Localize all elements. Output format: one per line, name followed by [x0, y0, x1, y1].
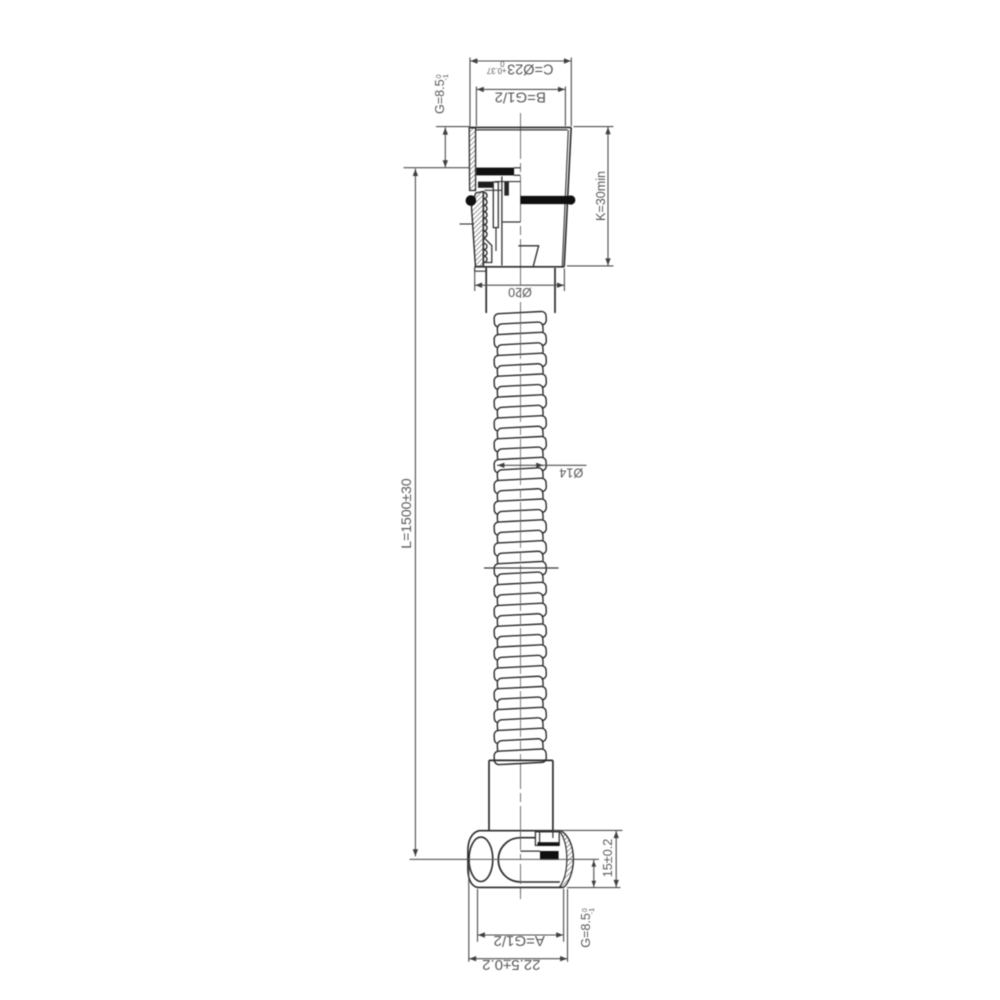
svg-text:A=G1/2: A=G1/2	[494, 932, 545, 949]
svg-text:G=8.5: G=8.5	[579, 913, 593, 948]
svg-text:22.5±0.2: 22.5±0.2	[482, 956, 540, 973]
svg-text:Ø14: Ø14	[559, 466, 583, 480]
svg-text:L=1500±30: L=1500±30	[398, 478, 414, 549]
svg-text:B=G1/2: B=G1/2	[495, 88, 546, 105]
svg-text:-1: -1	[441, 74, 450, 80]
svg-text:K=30min: K=30min	[594, 171, 608, 221]
svg-text:Ø20: Ø20	[508, 285, 532, 299]
svg-text:0: 0	[500, 59, 505, 68]
svg-text:-1: -1	[587, 908, 596, 914]
svg-text:G=8.5: G=8.5	[433, 79, 447, 114]
svg-text:C=Ø23: C=Ø23	[507, 61, 553, 77]
svg-text:15±0.2: 15±0.2	[601, 839, 615, 877]
